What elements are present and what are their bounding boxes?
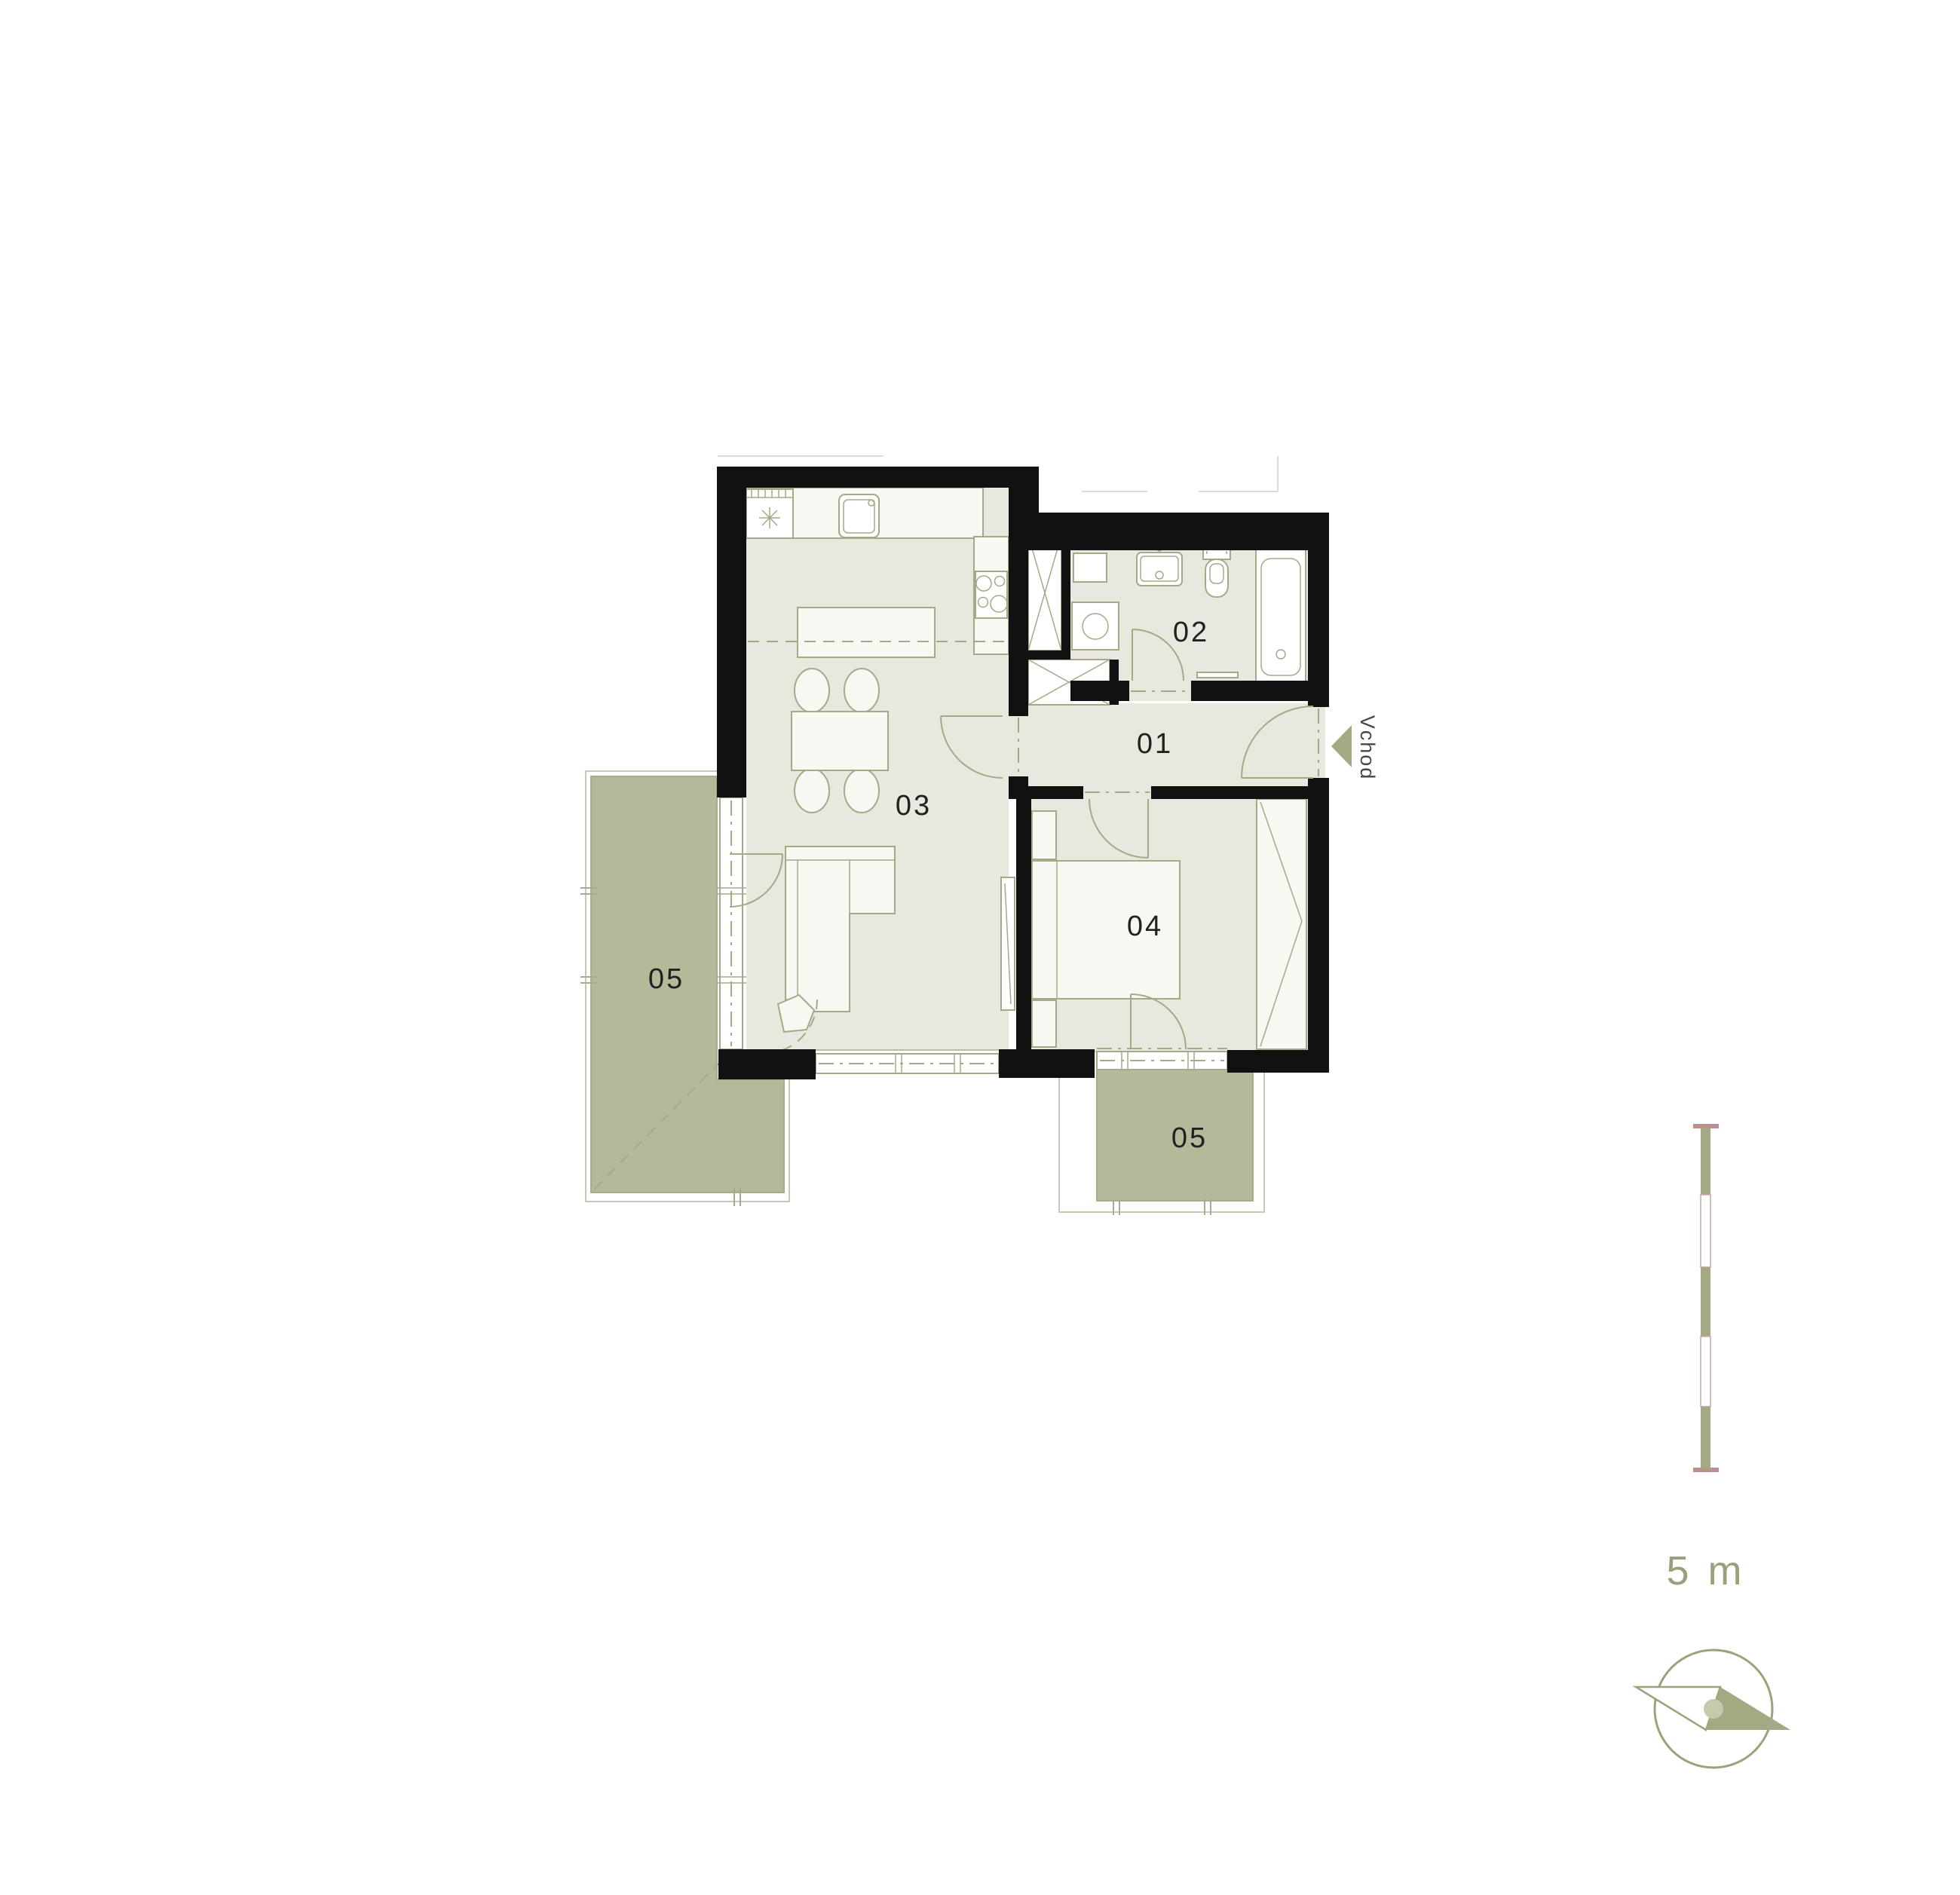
towel-rail	[1197, 672, 1238, 678]
label-bathroom: 02	[1173, 617, 1209, 648]
scale-segment	[1701, 1336, 1710, 1407]
scale-label: 5 m	[1666, 1548, 1745, 1593]
scale-segment	[1701, 1267, 1710, 1336]
compass-pivot-dot	[1704, 1699, 1723, 1719]
bathroom-cabinet	[1073, 553, 1107, 582]
bathtub	[1256, 550, 1306, 683]
label-balcony-left: 05	[648, 963, 684, 995]
label-bedroom: 04	[1127, 911, 1163, 942]
dining-chair	[795, 669, 829, 712]
label-living-room: 03	[896, 790, 932, 822]
kitchen-island	[798, 608, 935, 657]
label-hallway: 01	[1137, 728, 1173, 760]
nightstand	[1032, 1000, 1056, 1047]
dining-chair	[795, 769, 829, 813]
toilet-tank	[1203, 550, 1230, 559]
entrance-arrow-icon	[1331, 725, 1352, 767]
scale-segment	[1701, 1407, 1710, 1469]
wardrobe	[1257, 799, 1306, 1049]
floor-plan-page: 01 02 03 04 05 05 Vchod 5 m	[0, 0, 1960, 1895]
floor-plan-svg: 01 02 03 04 05 05 Vchod 5 m	[0, 0, 1960, 1895]
entrance-marker: Vchod	[1331, 715, 1379, 781]
scale-segment	[1701, 1195, 1710, 1267]
toilet-bowl	[1205, 559, 1228, 597]
label-balcony-bottom: 05	[1171, 1122, 1208, 1154]
scale-segment	[1701, 1128, 1710, 1195]
floor-entrance-recess	[1308, 707, 1325, 778]
toilet	[1203, 550, 1230, 597]
scale-bar: 5 m	[1666, 1124, 1745, 1593]
washing-machine	[1072, 602, 1119, 650]
compass-icon	[1636, 1650, 1790, 1768]
freezer-asterisk-icon	[759, 507, 780, 528]
dining-chair	[844, 769, 879, 813]
dining-chair	[844, 669, 879, 712]
nightstand	[1032, 811, 1056, 859]
entrance-label: Vchod	[1356, 715, 1379, 781]
dining-table	[792, 712, 888, 770]
